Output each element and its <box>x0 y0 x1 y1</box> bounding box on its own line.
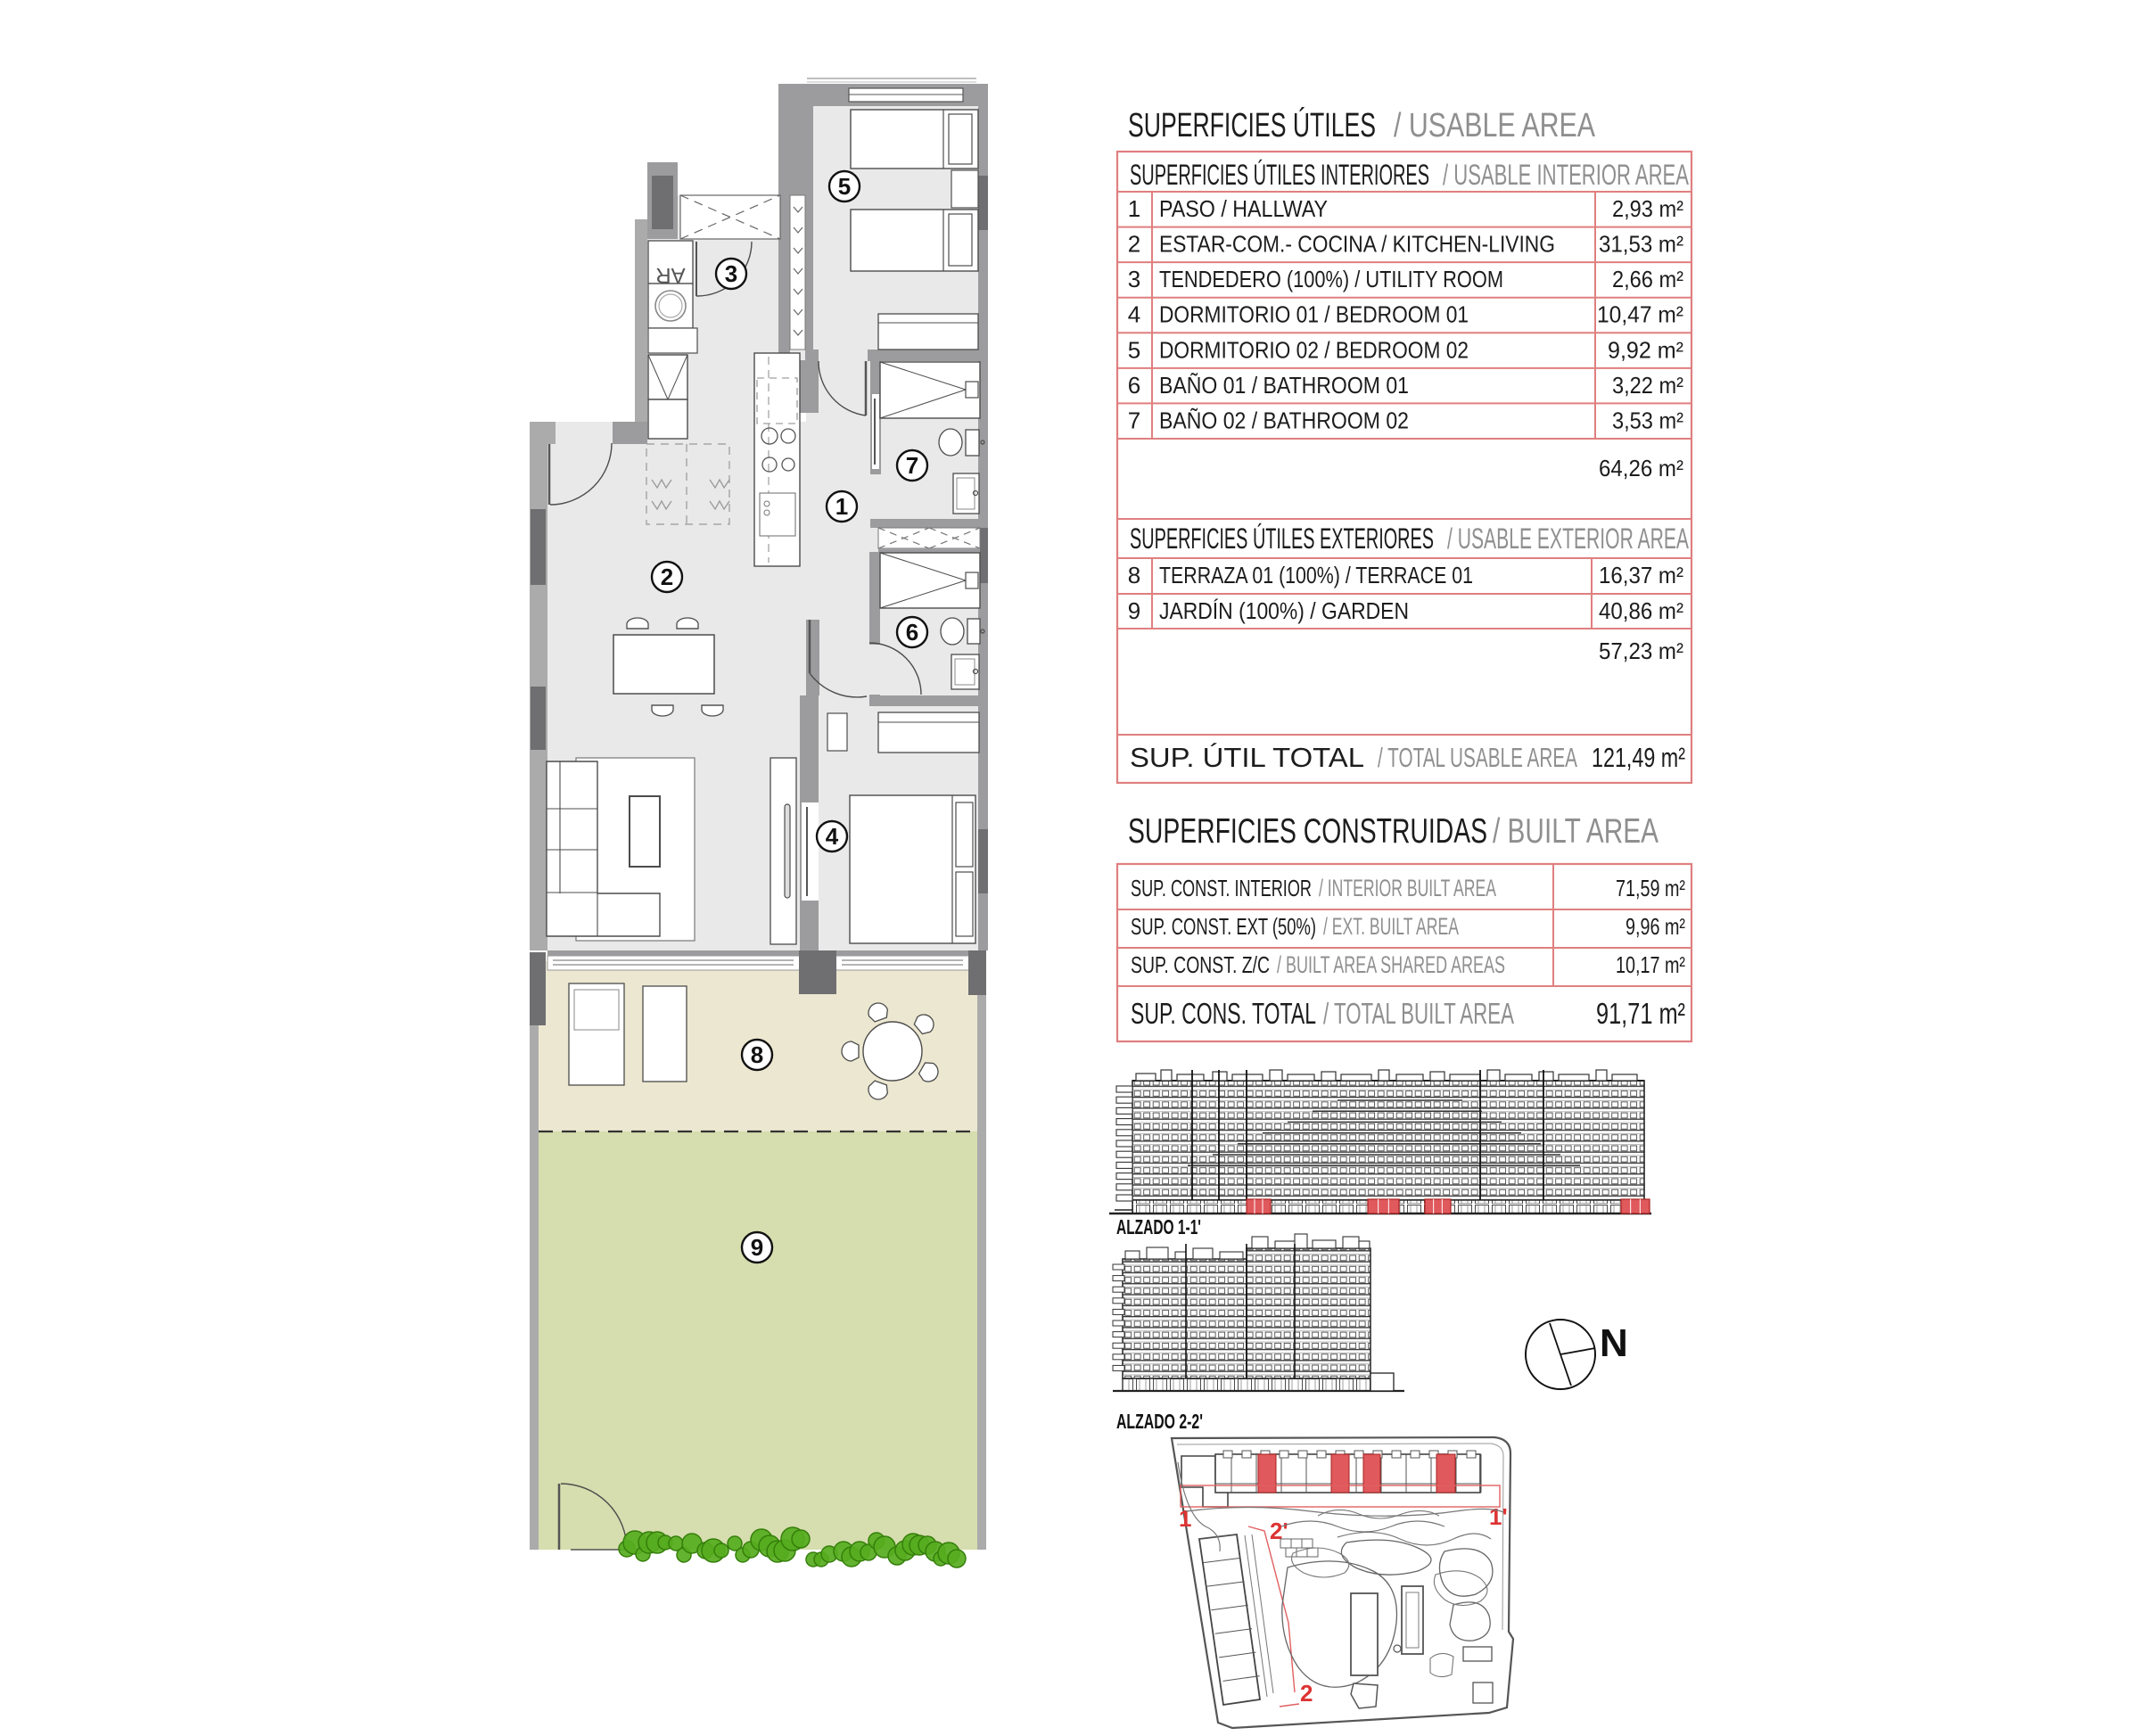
svg-text:4: 4 <box>1128 301 1140 328</box>
svg-text:ALZADO 2-2': ALZADO 2-2' <box>1116 1410 1203 1433</box>
svg-text:BAÑO 01 / BATHROOM 01: BAÑO 01 / BATHROOM 01 <box>1159 372 1409 399</box>
svg-text:SUPERFICIES ÚTILES EXTERIORES: SUPERFICIES ÚTILES EXTERIORES <box>1130 522 1434 555</box>
svg-text:N: N <box>1600 1321 1628 1365</box>
svg-text:3: 3 <box>1128 266 1140 292</box>
svg-text:SUP. CONST. Z/C: SUP. CONST. Z/C <box>1131 951 1270 978</box>
svg-text:31,53 m²: 31,53 m² <box>1599 231 1683 258</box>
svg-text:5: 5 <box>1128 336 1140 363</box>
svg-text:7: 7 <box>906 452 918 479</box>
svg-text:1: 1 <box>1128 195 1140 222</box>
svg-text:9: 9 <box>751 1234 763 1261</box>
svg-text:6: 6 <box>906 619 918 646</box>
svg-text:TENDEDERO (100%) / UTILITY ROO: TENDEDERO (100%) / UTILITY ROOM <box>1159 266 1503 292</box>
svg-text:2,93 m²: 2,93 m² <box>1612 195 1683 222</box>
svg-text:ALZADO 1-1': ALZADO 1-1' <box>1116 1215 1201 1238</box>
svg-text:2: 2 <box>1128 231 1140 258</box>
svg-text:/ BUILT AREA SHARED AREAS: / BUILT AREA SHARED AREAS <box>1277 951 1505 978</box>
svg-text:/ USABLE INTERIOR AREA: / USABLE INTERIOR AREA <box>1443 159 1689 191</box>
svg-text:/ BUILT AREA: / BUILT AREA <box>1493 812 1658 851</box>
svg-text:SUPERFICIES ÚTILES: SUPERFICIES ÚTILES <box>1128 106 1376 144</box>
svg-text:40,86 m²: 40,86 m² <box>1599 597 1683 624</box>
svg-text:1: 1 <box>835 493 848 520</box>
svg-text:91,71 m²: 91,71 m² <box>1596 997 1685 1030</box>
svg-text:TERRAZA 01 (100%) / TERRACE 01: TERRAZA 01 (100%) / TERRACE 01 <box>1159 562 1473 588</box>
svg-text:16,37 m²: 16,37 m² <box>1599 562 1683 588</box>
svg-text:1: 1 <box>1179 1505 1191 1532</box>
svg-text:SUPERFICIES ÚTILES INTERIORES: SUPERFICIES ÚTILES INTERIORES <box>1130 159 1429 191</box>
svg-text:57,23 m²: 57,23 m² <box>1599 638 1683 664</box>
svg-text:4: 4 <box>826 823 839 850</box>
svg-text:10,47 m²: 10,47 m² <box>1597 301 1683 328</box>
svg-text:/ EXT. BUILT AREA: / EXT. BUILT AREA <box>1323 913 1459 940</box>
svg-text:PASO / HALLWAY: PASO / HALLWAY <box>1159 195 1328 222</box>
svg-text:SUP. CONST. INTERIOR: SUP. CONST. INTERIOR <box>1131 875 1312 901</box>
svg-text:SUP. CONST. EXT (50%): SUP. CONST. EXT (50%) <box>1131 913 1316 940</box>
svg-text:3,22 m²: 3,22 m² <box>1612 372 1683 399</box>
svg-text:BAÑO 02 / BATHROOM 02: BAÑO 02 / BATHROOM 02 <box>1159 407 1409 433</box>
svg-text:2,66 m²: 2,66 m² <box>1612 266 1683 292</box>
svg-text:/ INTERIOR BUILT AREA: / INTERIOR BUILT AREA <box>1319 875 1496 901</box>
svg-text:/ USABLE EXTERIOR AREA: / USABLE EXTERIOR AREA <box>1447 522 1689 555</box>
svg-text:9,92 m²: 9,92 m² <box>1608 336 1683 363</box>
svg-text:SUP. CONS. TOTAL: SUP. CONS. TOTAL <box>1131 997 1316 1030</box>
svg-text:6: 6 <box>1128 372 1140 399</box>
svg-text:8: 8 <box>1128 562 1140 588</box>
svg-text:9: 9 <box>1128 597 1140 624</box>
svg-text:SUPERFICIES CONSTRUIDAS: SUPERFICIES CONSTRUIDAS <box>1128 812 1487 851</box>
svg-text:JARDÍN (100%) / GARDEN: JARDÍN (100%) / GARDEN <box>1159 597 1409 624</box>
svg-text:DORMITORIO 01 / BEDROOM 01: DORMITORIO 01 / BEDROOM 01 <box>1159 301 1469 328</box>
svg-text:SUP. ÚTIL TOTAL: SUP. ÚTIL TOTAL <box>1130 742 1364 773</box>
svg-text:2: 2 <box>1300 1680 1313 1707</box>
svg-text:ESTAR-COM.- COCINA / KITCHEN-L: ESTAR-COM.- COCINA / KITCHEN-LIVING <box>1159 231 1555 258</box>
svg-text:8: 8 <box>751 1041 763 1068</box>
svg-text:7: 7 <box>1128 407 1140 433</box>
svg-text:5: 5 <box>838 173 851 200</box>
svg-text:64,26 m²: 64,26 m² <box>1599 455 1683 481</box>
svg-text:/ TOTAL BUILT AREA: / TOTAL BUILT AREA <box>1323 997 1514 1030</box>
svg-text:DORMITORIO 02 / BEDROOM 02: DORMITORIO 02 / BEDROOM 02 <box>1159 336 1469 363</box>
svg-text:10,17 m²: 10,17 m² <box>1616 951 1685 978</box>
svg-text:/ USABLE AREA: / USABLE AREA <box>1394 107 1596 144</box>
svg-text:/ TOTAL USABLE AREA: / TOTAL USABLE AREA <box>1378 742 1577 773</box>
svg-text:71,59 m²: 71,59 m² <box>1616 875 1685 901</box>
svg-text:2: 2 <box>661 564 673 590</box>
svg-text:9,96 m²: 9,96 m² <box>1626 913 1685 940</box>
svg-text:121,49 m²: 121,49 m² <box>1592 742 1685 773</box>
svg-text:3,53 m²: 3,53 m² <box>1612 407 1683 433</box>
svg-text:3: 3 <box>725 260 737 287</box>
svg-text:1': 1' <box>1489 1503 1508 1530</box>
